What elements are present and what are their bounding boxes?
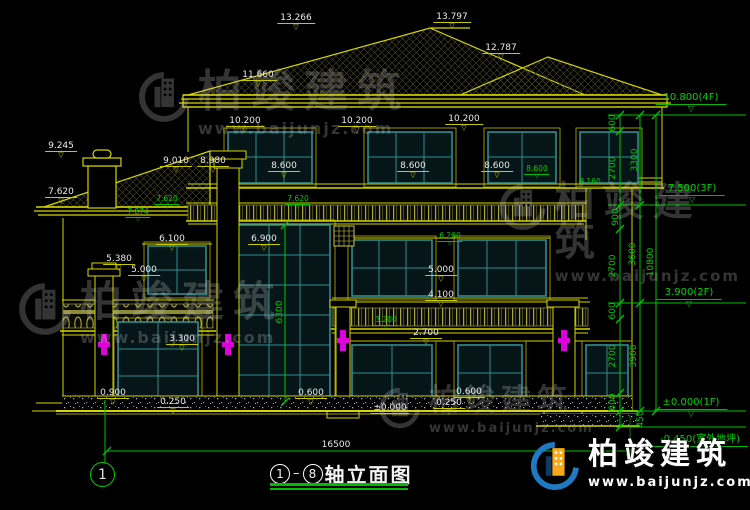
dimension-value: 2700 <box>608 255 618 278</box>
level-label: 0.900▽ <box>97 388 129 406</box>
brand-logo-icon <box>136 70 190 124</box>
dimension-value: 3600 <box>628 243 638 266</box>
title-axis-to: 8 <box>303 464 323 484</box>
level-label: 12.787▽ <box>482 43 520 61</box>
watermark-name: 柏竣建筑 <box>80 281 284 323</box>
dimension-value: 600 <box>608 114 618 131</box>
level-label: 11.660▽ <box>239 70 277 88</box>
green-level-label: 7.620▽ <box>285 195 310 211</box>
level-label: ±0.000▽ <box>370 403 409 414</box>
watermark: 柏竣建筑 www.baijunjz.com <box>16 281 284 347</box>
dimension-value: 2700 <box>608 345 618 368</box>
dimension-value: 3900 <box>629 345 639 368</box>
title-axis-dash: – <box>293 466 300 481</box>
level-label: 8.600▽ <box>481 161 513 179</box>
level-label: 0.600▽ <box>453 387 485 405</box>
title-axis-from: 1 <box>270 464 290 484</box>
green-level-label: 8.160▽ <box>577 178 602 194</box>
green-level-label: 7.874▽ <box>125 208 150 224</box>
level-label: 3.300▽ <box>166 334 198 352</box>
green-level-label: 6.260▽ <box>437 232 462 248</box>
dimension-value: 900 <box>611 208 621 225</box>
cad-elevation-screenshot: 13.266▽13.797▽12.787▽11.660▽10.200▽10.20… <box>0 0 750 510</box>
level-label: 13.266▽ <box>277 13 315 31</box>
green-level-label: 7.620▽ <box>154 195 179 211</box>
watermark-name: 柏竣建筑 <box>198 70 410 114</box>
dimension-value: 2700 <box>608 157 618 180</box>
dimension-value: 600 <box>608 393 618 410</box>
watermark-url: www.baijunjz.com <box>588 475 750 490</box>
floor-level-flag: ±0.000(1F)▽ <box>655 397 728 418</box>
watermark-url: www.baijunjz.com <box>429 421 594 436</box>
green-level-label: 3.200▽ <box>373 316 398 332</box>
level-label: 8.980▽ <box>197 156 229 174</box>
dimension-value: 450 <box>636 410 646 427</box>
level-label: 4.100▽ <box>425 290 457 308</box>
level-label: 8.600▽ <box>268 161 300 179</box>
level-label: 9.010▽ <box>160 156 192 174</box>
level-label: 10.200▽ <box>445 114 483 132</box>
level-label: 0.600▽ <box>295 388 327 406</box>
level-label: 10.200▽ <box>338 116 376 134</box>
level-label: 0.250▽ <box>157 397 189 415</box>
level-label: 5.000▽ <box>425 265 457 283</box>
brand-logo-icon <box>16 281 72 337</box>
level-label: 2.700▽ <box>410 328 442 346</box>
level-label: 5.000▽ <box>128 265 160 283</box>
level-label: 6.100▽ <box>156 234 188 252</box>
watermark-name: 柏竣建筑 <box>588 440 750 470</box>
level-label: 8.600▽ <box>397 161 429 179</box>
axis-bubble-1: 1 <box>90 462 115 487</box>
level-label: 6.900▽ <box>248 234 280 252</box>
title-underline-2 <box>270 488 408 490</box>
level-label: 16500▽ <box>319 440 354 450</box>
dimension-value: 6300 <box>275 301 285 324</box>
brand-watermark: 柏竣建筑 www.baijunjz.com <box>528 440 750 492</box>
level-label: 10.200▽ <box>226 116 264 134</box>
floor-level-flag: 10.800(4F)▽ <box>656 92 727 113</box>
level-label: 13.797▽ <box>433 12 471 30</box>
brand-logo-icon <box>528 440 580 492</box>
dimension-value: 600 <box>608 302 618 319</box>
dimension-value: 10800 <box>646 248 656 277</box>
floor-level-flag: 7.500(3F)▽ <box>660 183 725 204</box>
brand-logo-icon <box>497 182 547 232</box>
green-level-label: 8.600▽ <box>524 165 549 181</box>
floor-level-flag: 3.900(2F)▽ <box>657 287 722 308</box>
level-label: 9.245▽ <box>45 141 77 159</box>
level-label: 7.620▽ <box>45 187 77 205</box>
dimension-value: 3300 <box>630 149 640 172</box>
title-underline <box>270 483 408 486</box>
